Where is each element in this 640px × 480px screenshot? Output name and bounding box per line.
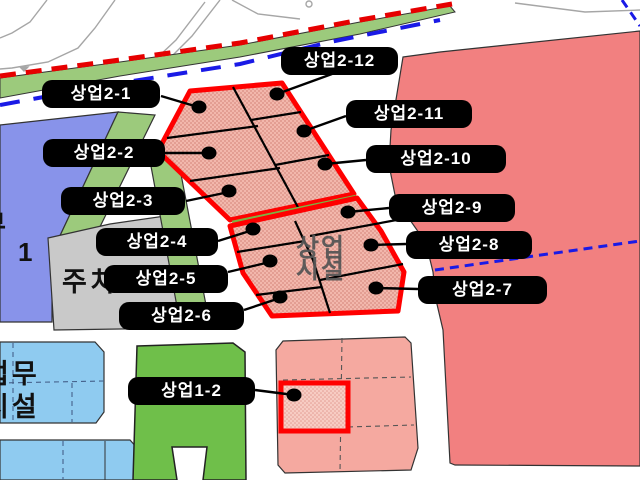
office-area-label-line2: 시설 — [0, 385, 40, 424]
parcel-label-sangeop-2-4[interactable]: 상업2-4 — [96, 228, 218, 256]
blue-dashed-line-topright — [622, 0, 640, 26]
parcel-label-sangeop-1-2[interactable]: 상업1-2 — [128, 377, 255, 405]
parcel-label-sangeop-2-3[interactable]: 상업2-3 — [61, 187, 185, 215]
zoning-map-canvas[interactable]: 상업 시설 주차 업무 시설 부 1 상업2-1 상업2-12 상업2-2 상업… — [0, 0, 640, 480]
park-block — [133, 343, 246, 480]
parcel-label-sangeop-2-10[interactable]: 상업2-10 — [366, 145, 506, 173]
parcel-label-sangeop-2-1[interactable]: 상업2-1 — [42, 80, 160, 108]
parcel-label-sangeop-2-7[interactable]: 상업2-7 — [418, 276, 547, 304]
parcel-label-sangeop-2-9[interactable]: 상업2-9 — [389, 194, 515, 222]
center-area-label-line2: 시설 — [291, 250, 351, 286]
parcel-label-sangeop-2-11[interactable]: 상업2-11 — [346, 100, 472, 128]
parcel-label-sangeop-2-5[interactable]: 상업2-5 — [104, 265, 228, 293]
left-edge-label-partial: 부 — [0, 205, 6, 242]
parcel-label-sangeop-2-2[interactable]: 상업2-2 — [43, 139, 165, 167]
parcel-label-sangeop-2-6[interactable]: 상업2-6 — [119, 302, 244, 330]
parcel-label-sangeop-2-8[interactable]: 상업2-8 — [406, 231, 532, 259]
left-edge-label-number: 1 — [18, 237, 32, 268]
parcel-label-sangeop-2-12[interactable]: 상업2-12 — [281, 47, 398, 75]
